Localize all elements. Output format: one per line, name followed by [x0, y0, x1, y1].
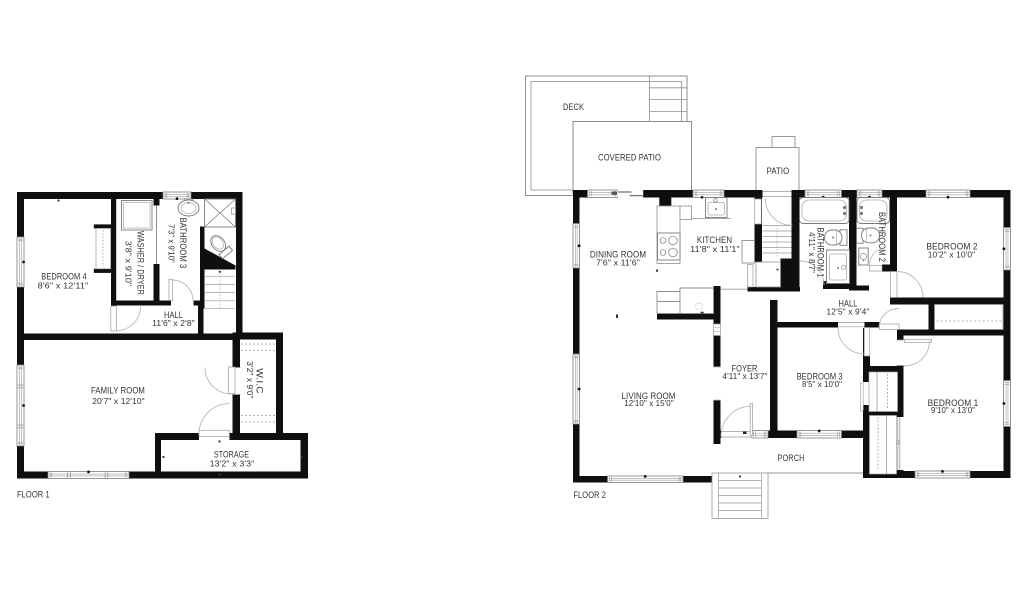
svg-text:BATHROOM 1: BATHROOM 1 [816, 228, 826, 278]
svg-text:20'7" x 12'10": 20'7" x 12'10" [92, 397, 145, 406]
svg-text:DECK: DECK [563, 102, 584, 112]
svg-text:10'2" x 10'0": 10'2" x 10'0" [928, 251, 976, 260]
svg-text:FLOOR 1: FLOOR 1 [17, 490, 50, 500]
svg-text:FAMILY ROOM: FAMILY ROOM [91, 385, 145, 395]
svg-text:PATIO: PATIO [767, 166, 790, 176]
svg-text:7'6" x 11'6": 7'6" x 11'6" [596, 258, 640, 267]
svg-text:12'5" x 9'4": 12'5" x 9'4" [826, 308, 869, 317]
svg-text:4'11" x 8'7": 4'11" x 8'7" [807, 232, 816, 273]
svg-text:BATHROOM 2: BATHROOM 2 [877, 212, 887, 262]
svg-text:13'2" x 3'3": 13'2" x 3'3" [210, 460, 255, 469]
svg-text:8'5" x 10'0": 8'5" x 10'0" [802, 380, 842, 389]
svg-text:8'6" x 12'11": 8'6" x 12'11" [38, 282, 89, 291]
svg-text:4'11" x 13'7": 4'11" x 13'7" [723, 372, 768, 381]
svg-text:FLOOR 2: FLOOR 2 [573, 490, 606, 500]
svg-text:11'6" x 2'8": 11'6" x 2'8" [152, 319, 195, 328]
svg-text:3'8" x 9'10": 3'8" x 9'10" [124, 241, 133, 286]
svg-text:KITCHEN: KITCHEN [697, 235, 732, 245]
svg-text:7'3" x 9'10": 7'3" x 9'10" [167, 224, 176, 263]
svg-text:BATHROOM 3: BATHROOM 3 [178, 218, 188, 269]
svg-text:3'2" x 9'0": 3'2" x 9'0" [245, 361, 254, 398]
svg-text:PORCH: PORCH [778, 453, 805, 463]
svg-text:BEDROOM 4: BEDROOM 4 [41, 272, 86, 282]
svg-text:STORAGE: STORAGE [214, 450, 249, 460]
svg-text:11'8" x 11'1": 11'8" x 11'1" [690, 245, 740, 254]
svg-text:WASHER / DRYER: WASHER / DRYER [136, 231, 146, 295]
svg-text:COVERED PATIO: COVERED PATIO [598, 153, 661, 163]
svg-text:12'10" x 15'0": 12'10" x 15'0" [624, 399, 674, 408]
svg-text:9'10" x 13'0": 9'10" x 13'0" [931, 406, 975, 415]
svg-text:W.I.C: W.I.C [255, 368, 265, 394]
